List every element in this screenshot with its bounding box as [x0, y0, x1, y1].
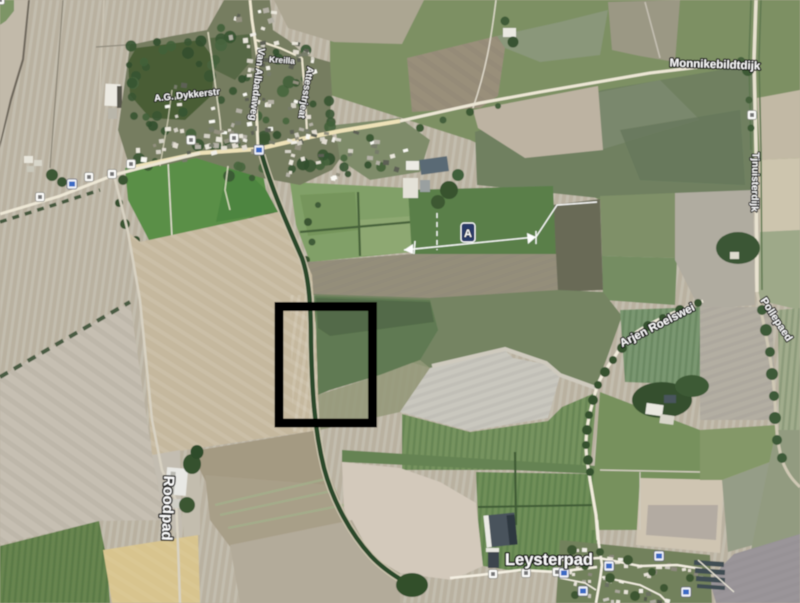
svg-text:A: A [464, 228, 472, 240]
svg-text:Tjnuisterdijk: Tjnuisterdijk [748, 152, 760, 212]
svg-text:Kreilla: Kreilla [269, 54, 296, 66]
svg-text:Roodpad: Roodpad [158, 475, 177, 541]
svg-text:Leysterpad: Leysterpad [505, 551, 593, 569]
